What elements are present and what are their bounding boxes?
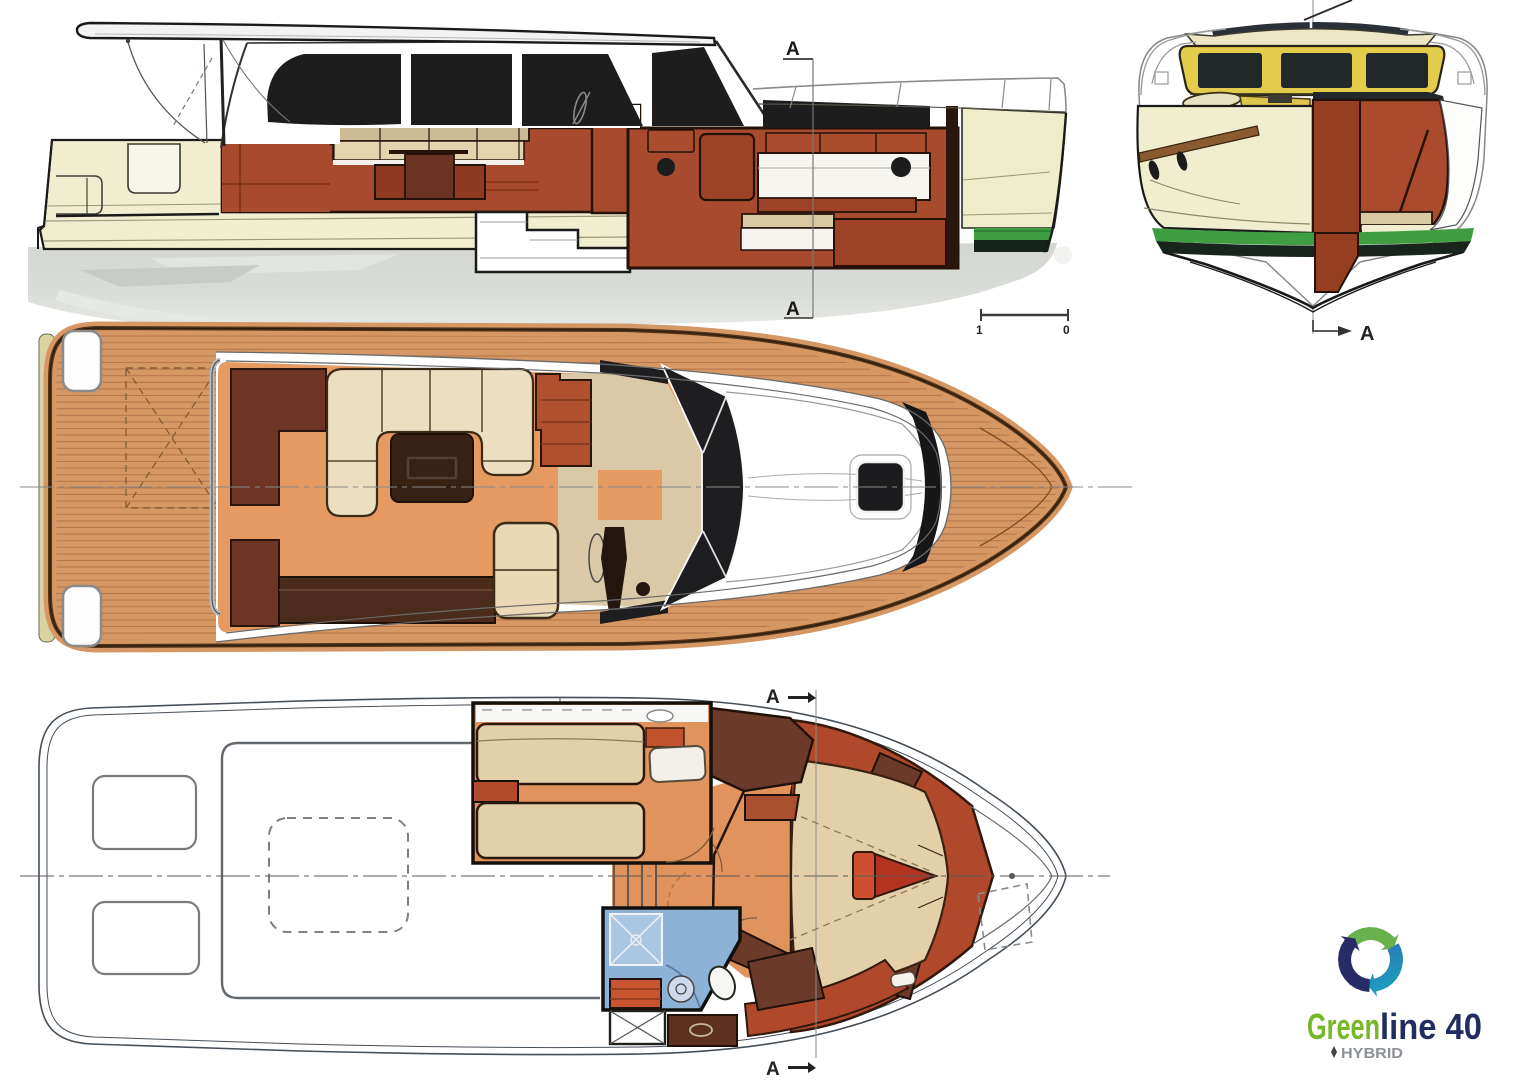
svg-text:1: 1: [976, 323, 983, 337]
svg-text:HYBRID: HYBRID: [1341, 1045, 1403, 1062]
svg-text:line 40: line 40: [1380, 1006, 1482, 1047]
svg-text:Green: Green: [1307, 1006, 1380, 1047]
svg-text:A: A: [786, 39, 800, 60]
svg-text:0: 0: [1063, 323, 1070, 337]
svg-text:A: A: [786, 299, 800, 320]
svg-text:A: A: [766, 687, 780, 708]
svg-text:A: A: [766, 1059, 780, 1080]
svg-text:A: A: [1360, 323, 1374, 345]
